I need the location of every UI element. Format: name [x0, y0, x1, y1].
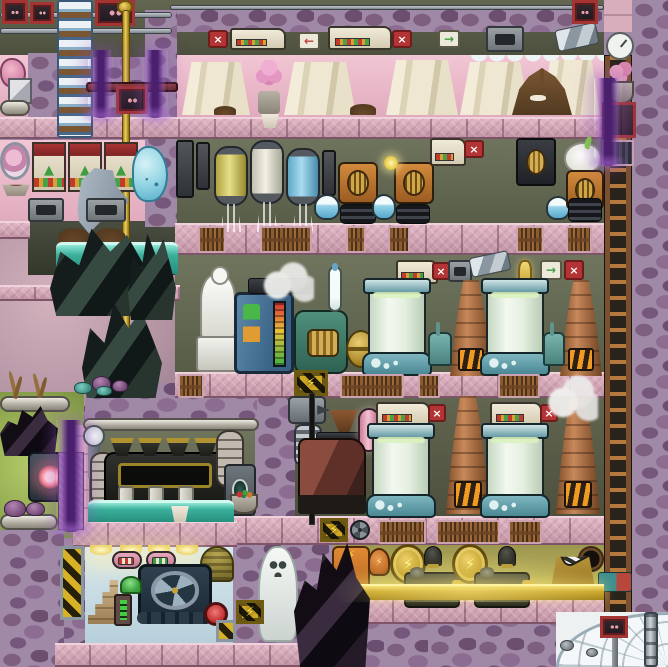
wood-ladder-cell-4[interactable]: [388, 226, 410, 253]
wall-slab-c[interactable]: [322, 150, 336, 196]
floor-recreation: [55, 643, 305, 667]
ethanol-distiller-1-glass[interactable]: [368, 285, 426, 355]
espresso-machine-1[interactable]: [338, 162, 378, 204]
small-battery[interactable]: ⚡: [368, 548, 390, 576]
ethanol-distiller-1-base[interactable]: [362, 352, 432, 376]
control-console[interactable]: [234, 292, 294, 374]
bellows-3: [568, 198, 602, 222]
cave-ledge-a: [0, 396, 70, 412]
floor-debris-a[interactable]: [560, 640, 574, 651]
hazard-sign-g: ×: [540, 404, 558, 422]
glass-dome-b[interactable]: [372, 194, 396, 220]
hazard-corner[interactable]: [216, 620, 236, 642]
release-sign-green: →: [540, 260, 562, 280]
hazard-sign-a: ×: [208, 30, 228, 48]
ceiling-lamp-4[interactable]: [176, 545, 198, 555]
specimen-pedestal: [0, 100, 30, 116]
dial-indicator: [606, 32, 634, 60]
flower-pot[interactable]: [606, 58, 636, 104]
ethanol-pool: [332, 584, 604, 600]
ceiling-fan-vent[interactable]: [350, 520, 370, 540]
wall-slab-a[interactable]: [176, 140, 194, 198]
console-flue: [248, 278, 312, 294]
valve-b[interactable]: [30, 2, 54, 24]
ore-debris-b[interactable]: [96, 386, 112, 396]
wood-ladder-cell-6[interactable]: [566, 226, 592, 253]
incubator-1[interactable]: ▲: [32, 142, 66, 192]
loader-ranch-a[interactable]: [28, 198, 64, 222]
pot-shelf[interactable]: [602, 102, 636, 138]
valve-top-right[interactable]: [572, 0, 598, 24]
espresso-machine-2[interactable]: [394, 162, 434, 204]
auto-sweeper-1[interactable]: [428, 332, 452, 366]
wood-ladder-cell-8[interactable]: [340, 374, 404, 398]
ice-block: [132, 146, 168, 202]
headstone-3[interactable]: [386, 60, 458, 115]
corner-pipe[interactable]: [644, 612, 658, 667]
hazard-sign-c: ×: [464, 140, 484, 158]
mesh-tile: [602, 140, 634, 166]
boulder-b[interactable]: [26, 502, 45, 516]
dirt-pile-b[interactable]: [350, 104, 376, 115]
fertilizer-machine[interactable]: [294, 310, 348, 374]
dead-plant-a[interactable]: [4, 368, 26, 398]
boulder-a[interactable]: [4, 500, 26, 517]
ceiling-ledge-petroleum: [83, 418, 259, 431]
joint-plate-1[interactable]: ⚡: [294, 370, 328, 396]
memorial-plant[interactable]: [252, 60, 286, 114]
loader-ranch-b[interactable]: [86, 198, 126, 222]
ethanol-distiller-3-glass[interactable]: [372, 430, 430, 498]
airlock-door[interactable]: [60, 546, 84, 620]
wood-ladder-cell-12[interactable]: [436, 520, 500, 544]
wall-heater-top[interactable]: [116, 86, 148, 114]
conveyor-item-stack[interactable]: [57, 0, 93, 138]
floor-debris-b[interactable]: [586, 648, 598, 657]
wood-ladder-cell-1[interactable]: [198, 226, 226, 253]
decor-bowl[interactable]: [230, 494, 258, 514]
monitor-console-a[interactable]: [230, 28, 286, 50]
wall-right-edge: [632, 0, 668, 667]
ethanol-distiller-2-base[interactable]: [480, 352, 550, 376]
marble-statue[interactable]: [200, 274, 236, 338]
ethanol-distiller-2-glass[interactable]: [486, 285, 544, 355]
monitor-console-c[interactable]: [430, 138, 466, 166]
pipe-center[interactable]: [170, 5, 604, 10]
green-dome-button[interactable]: [120, 576, 142, 594]
vent-machine[interactable]: [516, 138, 556, 186]
wood-ladder-cell-5[interactable]: [516, 226, 544, 253]
hazard-sign-f: ×: [428, 404, 446, 422]
gas-canister-white[interactable]: [250, 140, 284, 204]
arrow-sign-green: →: [438, 30, 460, 48]
hazard-sign-b: ×: [392, 30, 412, 48]
valve-a[interactable]: [2, 0, 28, 24]
ore-debris-a[interactable]: [74, 382, 92, 394]
wall-lamp[interactable]: [384, 156, 398, 170]
joint-plate-2[interactable]: ⚡: [320, 518, 348, 542]
wood-burner[interactable]: [298, 438, 366, 512]
cobble-block-topleft: [28, 53, 60, 119]
ethanol-distiller-4-base[interactable]: [480, 494, 550, 518]
bellows-2: [396, 204, 430, 224]
dirt-pile-a[interactable]: [214, 106, 236, 115]
boulder-d[interactable]: [112, 380, 128, 392]
chime-dome-b[interactable]: [498, 546, 516, 566]
tank-red-gauge[interactable]: [112, 551, 142, 569]
tile-strip-purple: [58, 452, 84, 530]
dead-plant-b[interactable]: [28, 370, 52, 398]
auto-sweeper-2[interactable]: [543, 332, 565, 366]
floor-ranch-left: [0, 221, 30, 239]
loader-top[interactable]: [486, 26, 524, 52]
wood-ladder-cell-10[interactable]: [498, 374, 540, 398]
wood-ladder-cell-13[interactable]: [508, 520, 542, 544]
glass-tube-lamp[interactable]: [328, 266, 342, 312]
bellows-1: [340, 204, 376, 224]
ghost-statue[interactable]: [258, 546, 298, 642]
gas-canister-blue[interactable]: [286, 148, 320, 206]
gantry-box[interactable]: [448, 260, 472, 282]
ethanol-distiller-4-glass[interactable]: [486, 430, 544, 498]
wood-ladder-cell-3[interactable]: [346, 226, 366, 253]
hazard-sign-e: ×: [564, 260, 584, 280]
scope-head[interactable]: [600, 616, 628, 638]
fan-console[interactable]: [138, 564, 212, 622]
gas-canister-yellow[interactable]: [214, 146, 248, 206]
ceiling-lamp-1[interactable]: [90, 545, 112, 555]
wood-ladder-cell-9[interactable]: [418, 374, 440, 398]
wood-ladder-cell-11[interactable]: [378, 520, 426, 544]
monitor-console-b[interactable]: [328, 26, 392, 50]
wood-ladder-cell-7[interactable]: [178, 374, 204, 398]
headstone-2[interactable]: [284, 62, 356, 115]
joint-plate-3[interactable]: ⚡: [236, 600, 264, 624]
critter-capsule[interactable]: [0, 142, 30, 180]
wall-slab-b[interactable]: [196, 142, 210, 190]
wood-ladder-cell-2[interactable]: [260, 226, 312, 253]
ethanol-distiller-3-base[interactable]: [366, 494, 436, 518]
floor-petroleum: [73, 521, 237, 547]
chime-dome-a[interactable]: [424, 546, 442, 566]
arrow-sign-red: →: [298, 32, 320, 50]
smart-battery[interactable]: [114, 594, 132, 626]
game-viewport[interactable]: ×→×→▲▲▲××→×⚡××⚡⚡⚡⚡⚡⚡⚡⚡: [0, 0, 668, 667]
petroleum-room-pool: [88, 500, 234, 522]
glass-dome-a[interactable]: [314, 194, 340, 220]
robo-miner-arm[interactable]: [288, 396, 326, 424]
